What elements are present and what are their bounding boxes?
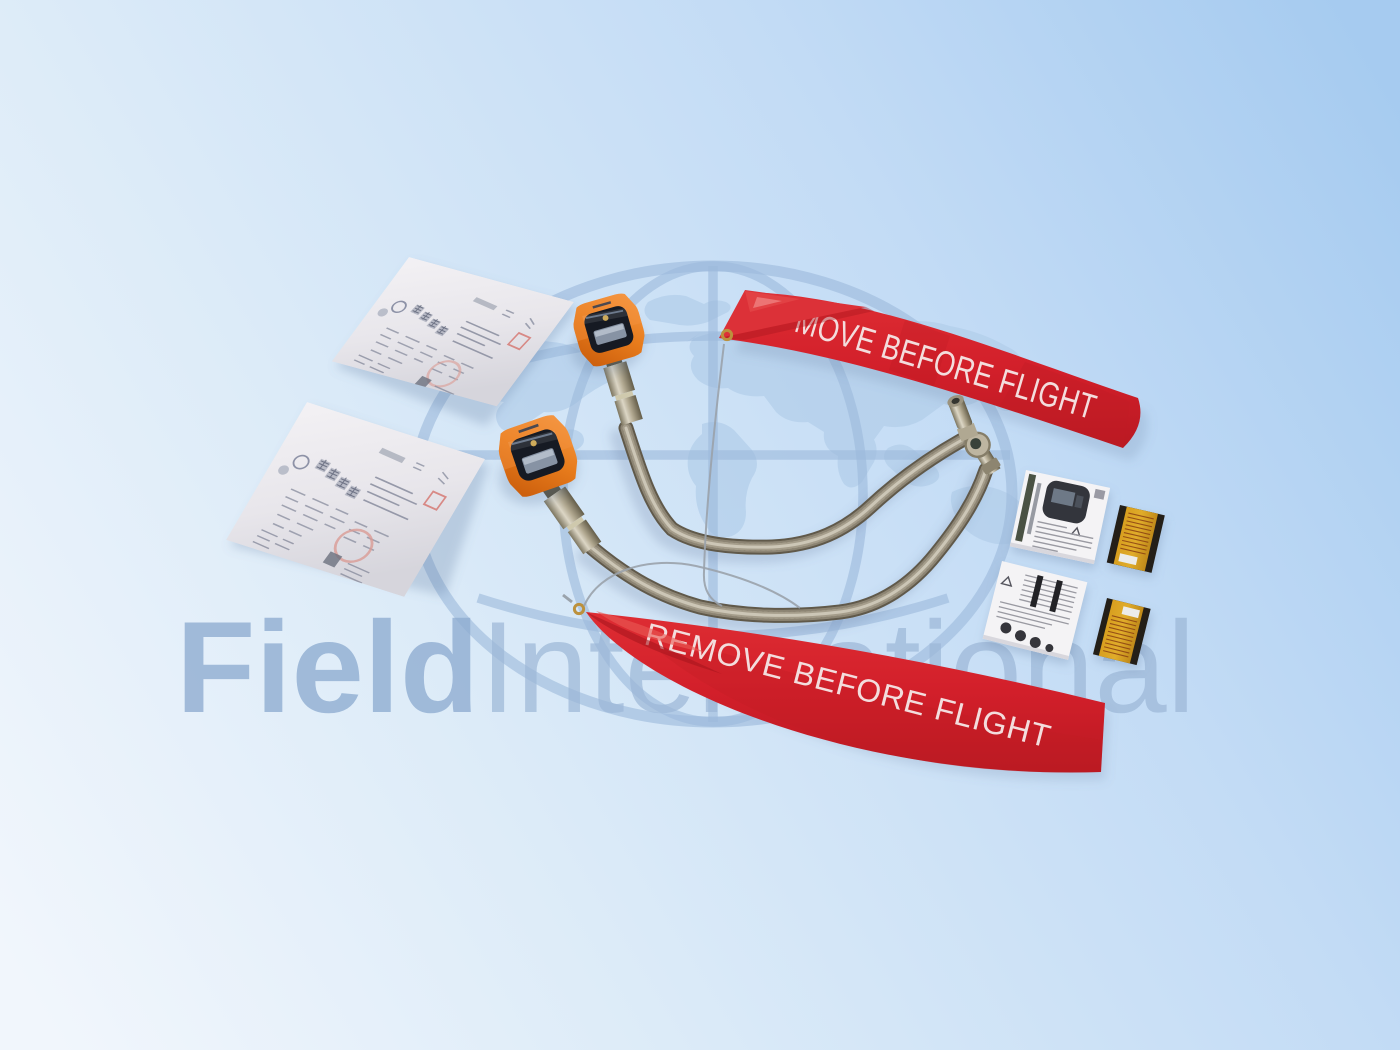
svg-text:Field: Field	[176, 594, 479, 740]
